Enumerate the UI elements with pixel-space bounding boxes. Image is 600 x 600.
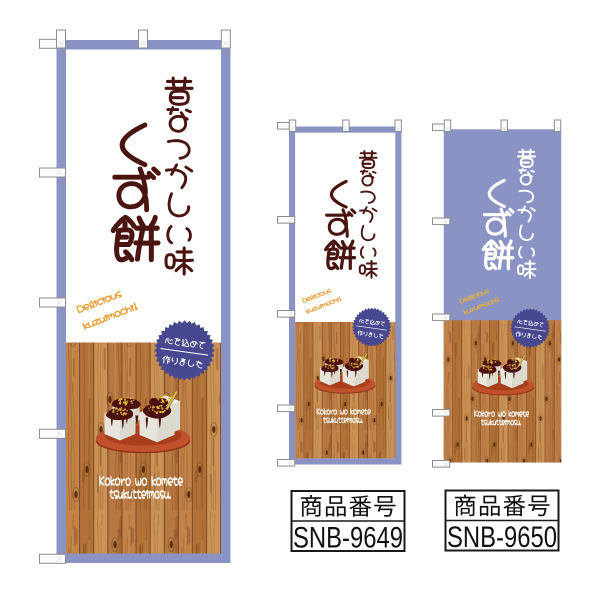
svg-text:SNB-9649: SNB-9649 (293, 522, 403, 555)
svg-text:SNB-9650: SNB-9650 (447, 521, 557, 554)
